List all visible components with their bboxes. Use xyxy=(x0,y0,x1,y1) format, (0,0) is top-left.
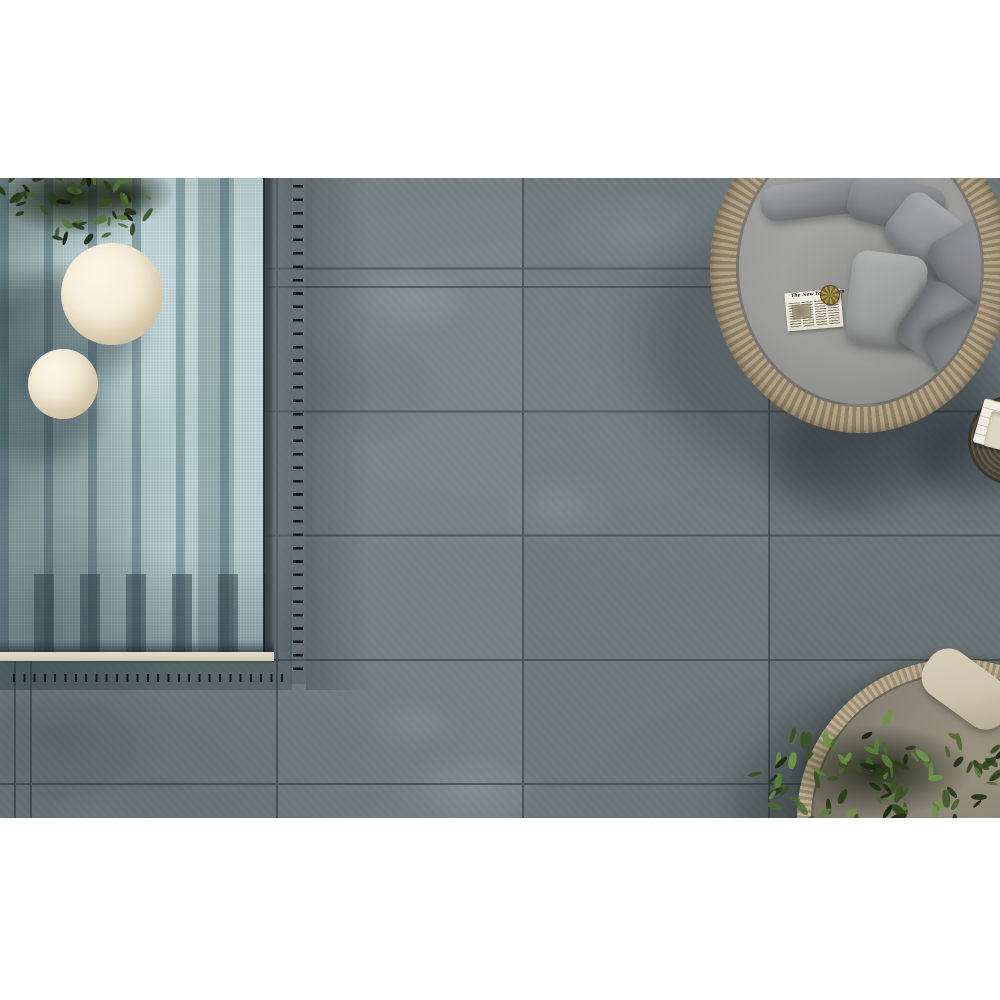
pool-coping xyxy=(0,652,274,661)
sphere-lamp-large xyxy=(61,243,163,345)
daybed-cushion: The New York Times xyxy=(736,178,984,407)
drainage-grate-vertical xyxy=(290,178,306,684)
top-margin xyxy=(0,0,1000,178)
rattan-daybed: The New York Times xyxy=(710,178,1000,433)
drain-slots xyxy=(293,185,303,680)
sphere-lamp-small xyxy=(28,349,98,419)
terrace-photo: The New York Times xyxy=(0,178,1000,818)
drainage-grate-horizontal xyxy=(13,674,290,682)
pool-edge xyxy=(263,178,290,652)
leaf xyxy=(117,214,128,220)
pool-edge-shadow xyxy=(306,178,370,690)
bottom-margin xyxy=(0,818,1000,1000)
coaster-medallion xyxy=(820,285,840,305)
foliage-top-left xyxy=(0,178,190,253)
swimming-pool xyxy=(0,178,306,690)
foliage-bottom-right xyxy=(740,693,1000,818)
leaf xyxy=(107,216,110,226)
product-photo-canvas: The New York Times xyxy=(0,0,1000,1000)
newspaper-photo xyxy=(793,304,811,318)
